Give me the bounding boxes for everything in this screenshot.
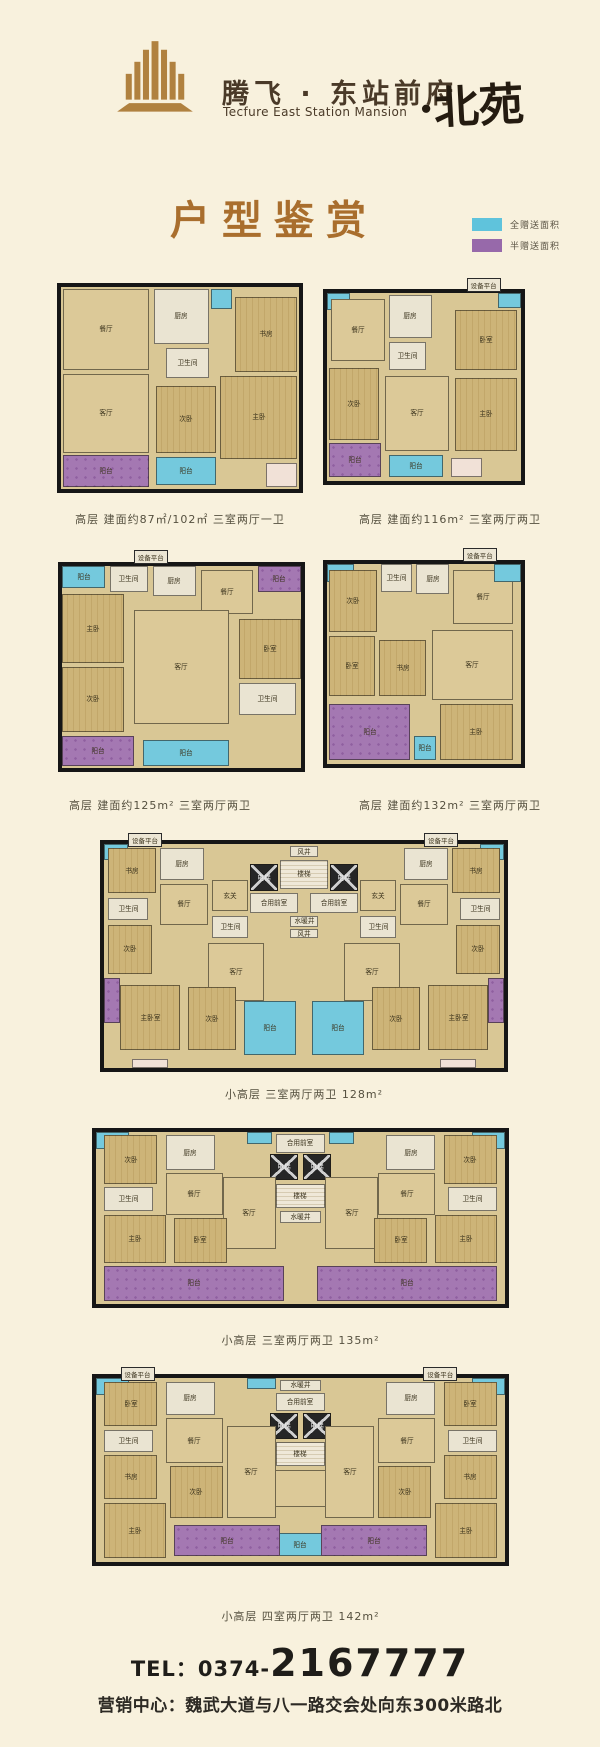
room-次卧: 次卧 [188, 987, 236, 1050]
room-次卧: 次卧 [170, 1466, 223, 1518]
area-purple [488, 978, 504, 1023]
room-次卧: 次卧 [62, 667, 124, 732]
room-卫生间: 卫生间 [381, 564, 412, 592]
room-阳台: 阳台 [63, 455, 149, 487]
room-客厅: 客厅 [227, 1426, 276, 1518]
room-主卧: 主卧 [435, 1215, 496, 1263]
room-厨房: 厨房 [160, 848, 204, 879]
marketing-center-address: 营销中心：魏武大道与八一路交会处向东300米路北 [0, 1691, 600, 1716]
room-次卧: 次卧 [372, 987, 420, 1050]
room-阳台: 阳台 [62, 566, 105, 588]
brand-suffix-calligraphy: ·北苑 [416, 67, 525, 137]
room-客厅: 客厅 [223, 1177, 276, 1249]
room-主卧室: 主卧室 [428, 985, 488, 1050]
room-书房: 书房 [108, 848, 156, 893]
legend-row-half-gift: 半赠送面积 [472, 235, 560, 256]
room-卫生间: 卫生间 [212, 916, 248, 938]
poster: 腾飞 · 东站前府 Tecfure East Station Mansion ·… [0, 0, 600, 1747]
plan-caption-1: 高层 建面约87㎡/102㎡ 三室两厅一卫 [57, 511, 303, 527]
room-卫生间: 卫生间 [108, 898, 148, 920]
room-厨房: 厨房 [389, 295, 432, 338]
room-餐厅: 餐厅 [166, 1418, 223, 1462]
room-餐厅: 餐厅 [378, 1173, 435, 1214]
room-卫生间: 卫生间 [448, 1187, 497, 1211]
floorplan-4: 设备平台次卧卫生间厨房餐厅卧室书房客厅主卧阳台阳台 [323, 560, 525, 768]
room-厨房: 厨房 [386, 1135, 435, 1169]
room-卧室: 卧室 [444, 1382, 497, 1426]
area-bay [440, 1059, 476, 1068]
room-卧室: 卧室 [329, 636, 376, 696]
area-cyan [494, 564, 521, 582]
room-主卧: 主卧 [455, 378, 517, 451]
area-floor [272, 1470, 329, 1507]
room-厨房: 厨房 [166, 1135, 215, 1169]
room-电梯: 电梯 [330, 864, 358, 891]
full-gift-label: 全赠送面积 [510, 218, 560, 231]
room-次卧: 次卧 [108, 925, 152, 974]
room-楼梯: 楼梯 [280, 860, 328, 889]
room-阳台: 阳台 [104, 1266, 284, 1300]
room-客厅: 客厅 [63, 374, 149, 453]
room-客厅: 客厅 [134, 610, 230, 723]
floorplan-5: 设备平台设备平台风井楼梯电梯电梯合用前室合用前室水暖井风井书房书房厨房厨房餐厅餐… [100, 840, 508, 1072]
floorplan-6: 合用前室电梯电梯楼梯水暖井次卧次卧厨房厨房卫生间卫生间餐厅餐厅客厅客厅主卧主卧卧… [92, 1128, 509, 1308]
room-餐厅: 餐厅 [400, 884, 448, 924]
room-餐厅: 餐厅 [166, 1173, 223, 1214]
plan-caption-5: 小高层 三室两厅两卫 128m² [100, 1086, 508, 1102]
equipment-platform-tag: 设备平台 [423, 1367, 457, 1381]
room-餐厅: 餐厅 [201, 570, 254, 614]
room-客厅: 客厅 [325, 1177, 378, 1249]
room-主卧室: 主卧室 [120, 985, 180, 1050]
room-水暖井: 水暖井 [280, 1380, 321, 1391]
floorplan-3: 设备平台阳台卫生间厨房餐厅阳台主卧次卧客厅卧室卫生间阳台阳台 [58, 562, 305, 772]
room-餐厅: 餐厅 [160, 884, 208, 924]
room-阳台: 阳台 [389, 455, 443, 478]
room-合用前室: 合用前室 [310, 893, 358, 913]
room-阳台: 阳台 [258, 566, 301, 592]
room-合用前室: 合用前室 [276, 1393, 325, 1411]
room-水暖井: 水暖井 [280, 1211, 321, 1223]
room-餐厅: 餐厅 [331, 299, 385, 361]
equipment-platform-tag: 设备平台 [467, 278, 501, 292]
room-厨房: 厨房 [416, 564, 449, 594]
plan-caption-2: 高层 建面约116m² 三室两厅两卫 [350, 511, 550, 527]
area-cyan [329, 1132, 354, 1144]
room-次卧: 次卧 [329, 368, 379, 439]
equipment-platform-tag: 设备平台 [128, 833, 162, 847]
area-cyan [211, 289, 232, 309]
area-bay [451, 458, 482, 477]
room-厨房: 厨房 [386, 1382, 435, 1415]
room-卧室: 卧室 [174, 1218, 227, 1263]
plan-caption-4: 高层 建面约132m² 三室两厅两卫 [350, 797, 550, 813]
room-厨房: 厨房 [166, 1382, 215, 1415]
room-客厅: 客厅 [432, 630, 513, 700]
room-合用前室: 合用前室 [276, 1134, 325, 1153]
room-卫生间: 卫生间 [460, 898, 500, 920]
room-楼梯: 楼梯 [276, 1442, 325, 1466]
room-阳台: 阳台 [143, 740, 229, 766]
half-gift-label: 半赠送面积 [510, 239, 560, 252]
room-水暖井: 水暖井 [290, 916, 318, 927]
floorplan-1: 餐厅厨房卫生间书房客厅次卧主卧阳台阳台 [57, 283, 303, 493]
room-书房: 书房 [452, 848, 500, 893]
room-阳台: 阳台 [244, 1001, 296, 1055]
room-次卧: 次卧 [444, 1135, 497, 1183]
room-餐厅: 餐厅 [378, 1418, 435, 1462]
room-客厅: 客厅 [325, 1426, 374, 1518]
equipment-platform-tag: 设备平台 [424, 833, 458, 847]
room-主卧: 主卧 [435, 1503, 496, 1558]
room-阳台: 阳台 [329, 704, 410, 760]
room-楼梯: 楼梯 [276, 1184, 325, 1208]
room-次卧: 次卧 [104, 1135, 157, 1183]
room-玄关: 玄关 [212, 880, 248, 911]
room-阳台: 阳台 [329, 443, 381, 477]
tel-number: 2167777 [270, 1644, 469, 1682]
room-阳台: 阳台 [174, 1525, 280, 1556]
room-餐厅: 餐厅 [63, 289, 149, 370]
room-主卧: 主卧 [104, 1503, 165, 1558]
area-bay [132, 1059, 168, 1068]
room-卫生间: 卫生间 [110, 566, 148, 592]
room-主卧: 主卧 [440, 704, 514, 760]
room-卫生间: 卫生间 [239, 683, 296, 715]
room-风井: 风井 [290, 929, 318, 938]
room-书房: 书房 [104, 1455, 157, 1499]
plan-caption-3: 高层 建面约125m² 三室两厅两卫 [40, 797, 280, 813]
equipment-platform-tag: 设备平台 [134, 550, 168, 564]
plan-caption-6: 小高层 三室两厅两卫 135m² [92, 1332, 509, 1348]
building-logo-icon [112, 36, 198, 122]
floorplan-7: 设备平台设备平台水暖井合用前室电梯电梯楼梯阳台卧室卧室厨房厨房卫生间卫生间餐厅餐… [92, 1374, 509, 1566]
room-主卧: 主卧 [220, 376, 296, 459]
equipment-platform-tag: 设备平台 [463, 548, 497, 562]
room-合用前室: 合用前室 [250, 893, 298, 913]
area-bay [266, 463, 297, 487]
room-卫生间: 卫生间 [360, 916, 396, 938]
legend-row-full-gift: 全赠送面积 [472, 214, 560, 235]
room-阳台: 阳台 [414, 736, 435, 760]
room-卫生间: 卫生间 [166, 348, 209, 378]
room-次卧: 次卧 [456, 925, 500, 974]
full-gift-swatch [472, 218, 502, 231]
legend: 全赠送面积 半赠送面积 [472, 214, 560, 256]
tel-prefix: TEL：0374- [131, 1653, 270, 1683]
room-阳台: 阳台 [62, 736, 134, 766]
room-书房: 书房 [444, 1455, 497, 1499]
area-cyan [247, 1378, 276, 1389]
room-卫生间: 卫生间 [448, 1430, 497, 1452]
room-厨房: 厨房 [404, 848, 448, 879]
plan-caption-7: 小高层 四室两厅两卫 142m² [92, 1608, 509, 1624]
room-次卧: 次卧 [378, 1466, 431, 1518]
page-title: 户型鉴赏 [170, 188, 378, 246]
room-客厅: 客厅 [385, 376, 449, 451]
room-厨房: 厨房 [154, 289, 209, 344]
room-阳台: 阳台 [317, 1266, 497, 1300]
room-卫生间: 卫生间 [104, 1430, 153, 1452]
equipment-platform-tag: 设备平台 [121, 1367, 155, 1381]
half-gift-swatch [472, 239, 502, 252]
room-卧室: 卧室 [239, 619, 301, 680]
room-阳台: 阳台 [156, 457, 216, 485]
room-卫生间: 卫生间 [389, 342, 426, 370]
room-厨房: 厨房 [153, 566, 196, 596]
room-风井: 风井 [290, 846, 318, 857]
area-cyan [498, 293, 521, 308]
brand-title-en: Tecfure East Station Mansion [223, 105, 407, 119]
room-次卧: 次卧 [329, 570, 378, 632]
room-玄关: 玄关 [360, 880, 396, 911]
room-阳台: 阳台 [312, 1001, 364, 1055]
floorplan-2: 设备平台餐厅厨房卫生间卧室次卧客厅主卧阳台阳台 [323, 289, 525, 485]
room-书房: 书房 [379, 640, 426, 696]
room-电梯: 电梯 [250, 864, 278, 891]
room-阳台: 阳台 [321, 1525, 427, 1556]
room-卧室: 卧室 [455, 310, 517, 370]
area-cyan [247, 1132, 272, 1144]
tel-line: TEL：0374-2167777 [0, 1644, 600, 1683]
room-阳台: 阳台 [276, 1533, 325, 1557]
room-卧室: 卧室 [104, 1382, 157, 1426]
room-次卧: 次卧 [156, 386, 216, 453]
room-主卧: 主卧 [62, 594, 124, 663]
room-卫生间: 卫生间 [104, 1187, 153, 1211]
room-卧室: 卧室 [374, 1218, 427, 1263]
room-书房: 书房 [235, 297, 297, 372]
area-purple [104, 978, 120, 1023]
room-主卧: 主卧 [104, 1215, 165, 1263]
